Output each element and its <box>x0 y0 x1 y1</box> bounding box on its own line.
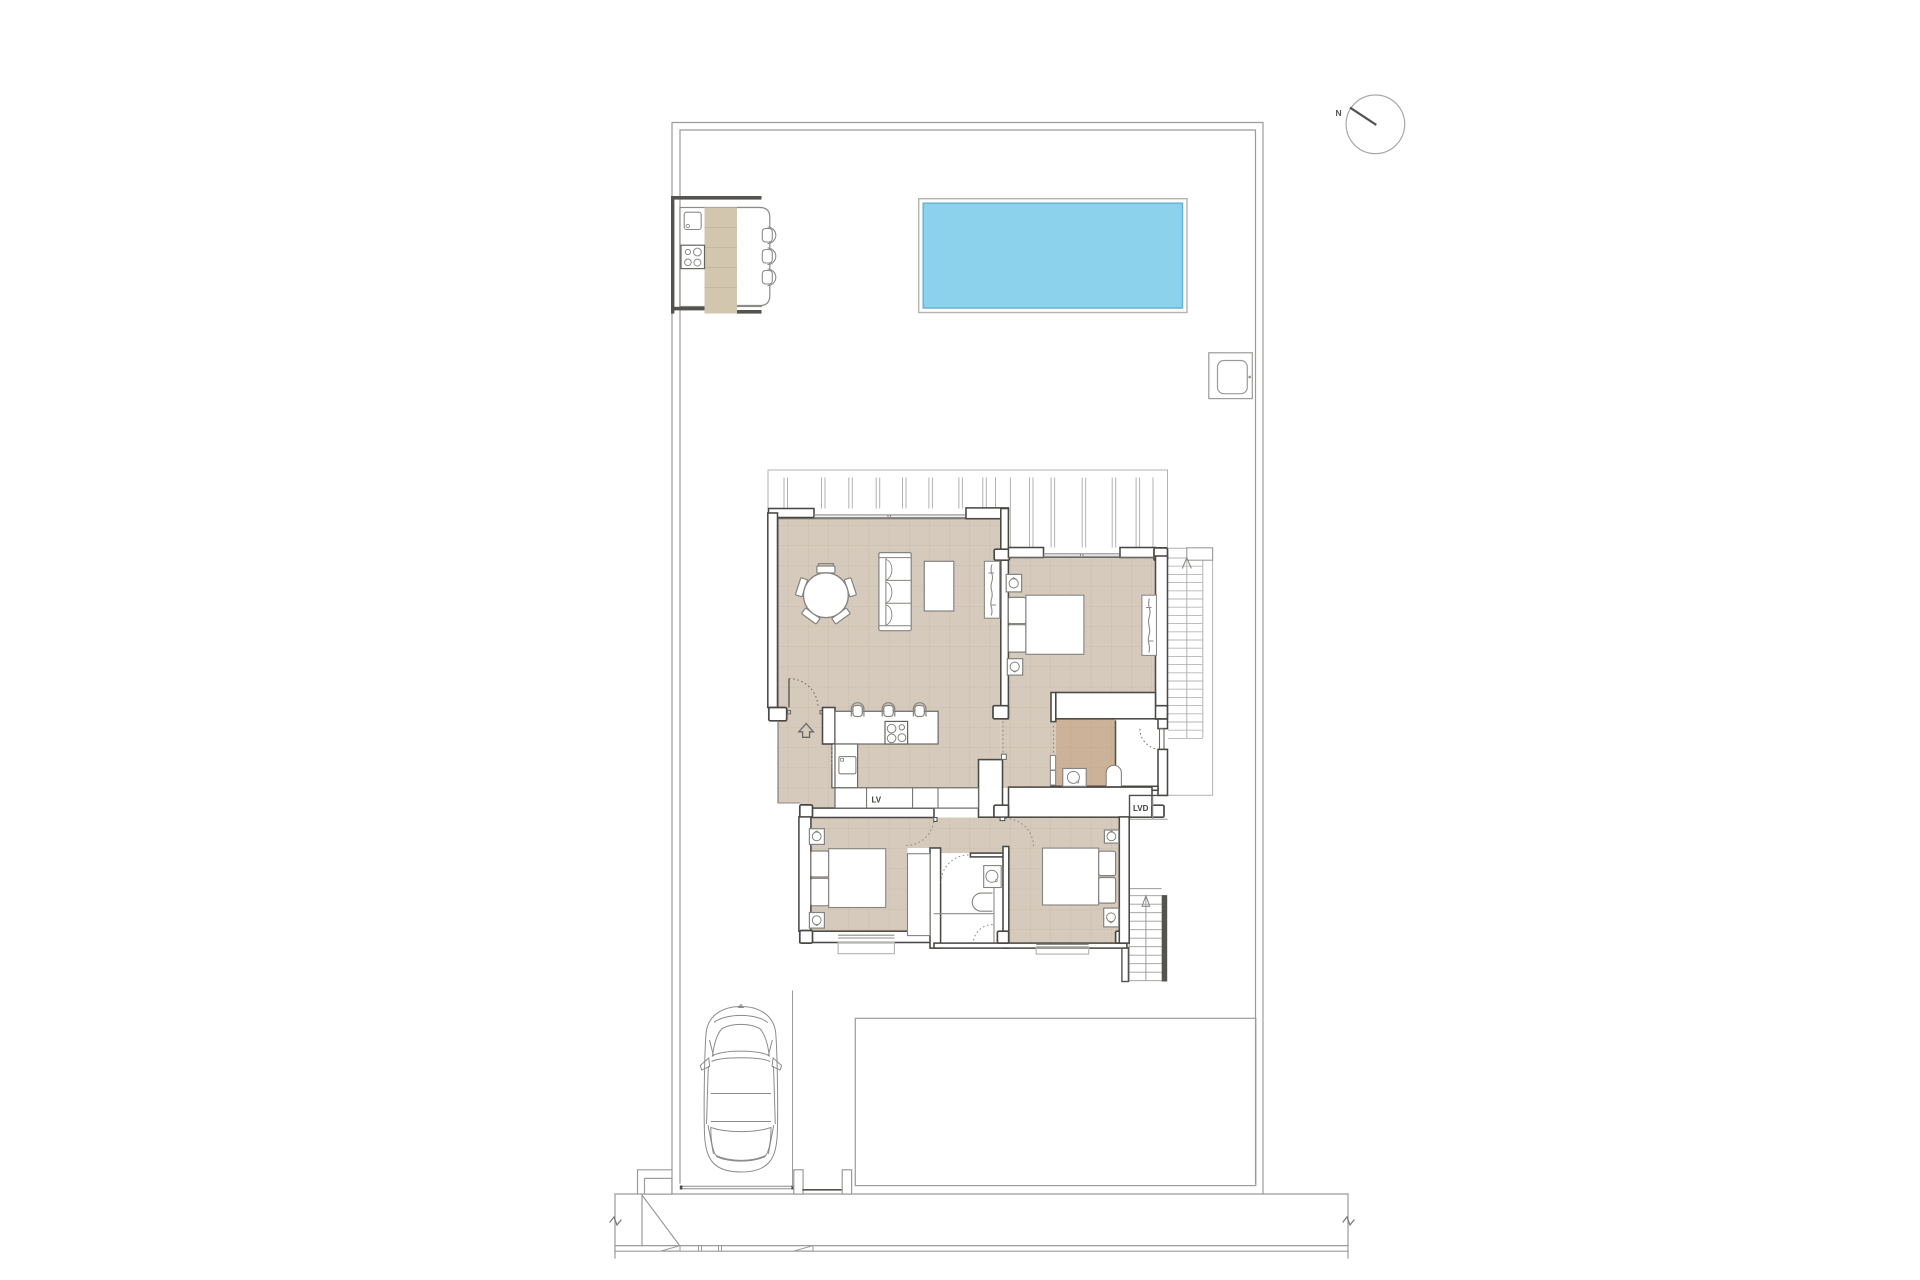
svg-text:N: N <box>1336 108 1342 118</box>
svg-text:LV: LV <box>872 796 882 805</box>
svg-text:LVD: LVD <box>1133 804 1149 813</box>
